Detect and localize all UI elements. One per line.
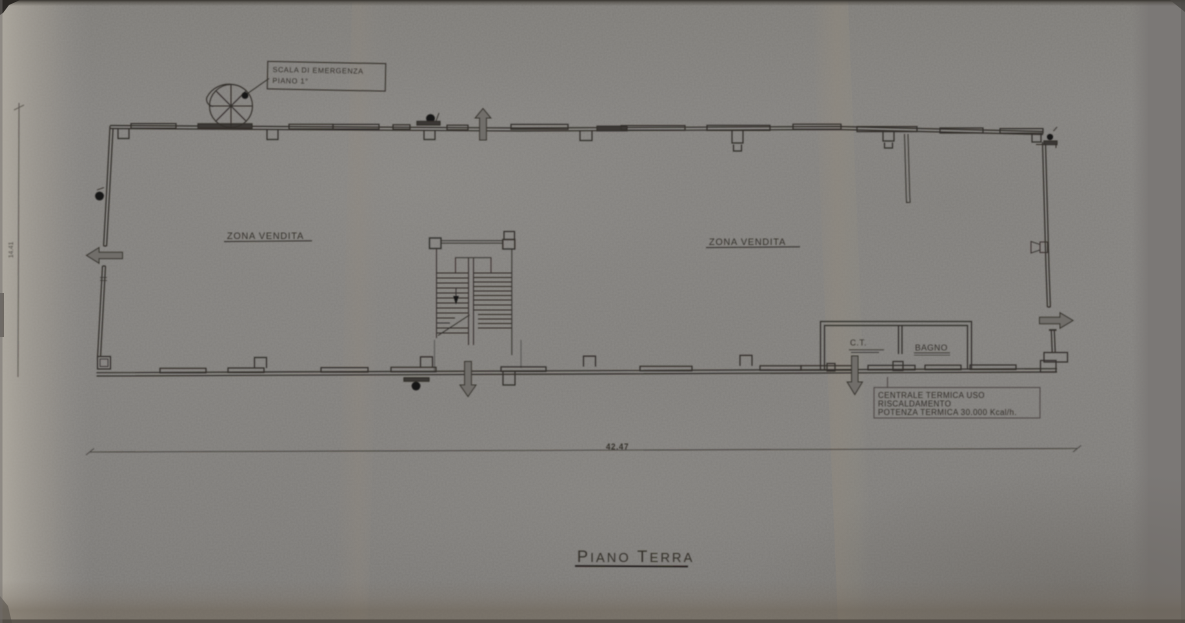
svg-text:C.T.: C.T. xyxy=(850,339,867,348)
svg-text:PIANO TERRA: PIANO TERRA xyxy=(577,548,695,566)
svg-text:SCALA DI EMERGENZA: SCALA DI EMERGENZA xyxy=(273,65,364,76)
svg-text:42.47: 42.47 xyxy=(606,443,629,452)
svg-text:POTENZA TERMICA 30.000 Kcal/h.: POTENZA TERMICA 30.000 Kcal/h. xyxy=(878,408,1017,417)
svg-text:14.41: 14.41 xyxy=(8,241,15,258)
svg-text:ZONA VENDITA: ZONA VENDITA xyxy=(227,231,304,241)
svg-text:ZONA VENDITA: ZONA VENDITA xyxy=(709,237,786,247)
svg-text:BAGNO: BAGNO xyxy=(915,343,948,353)
svg-text:PIANO 1°: PIANO 1° xyxy=(272,76,308,86)
